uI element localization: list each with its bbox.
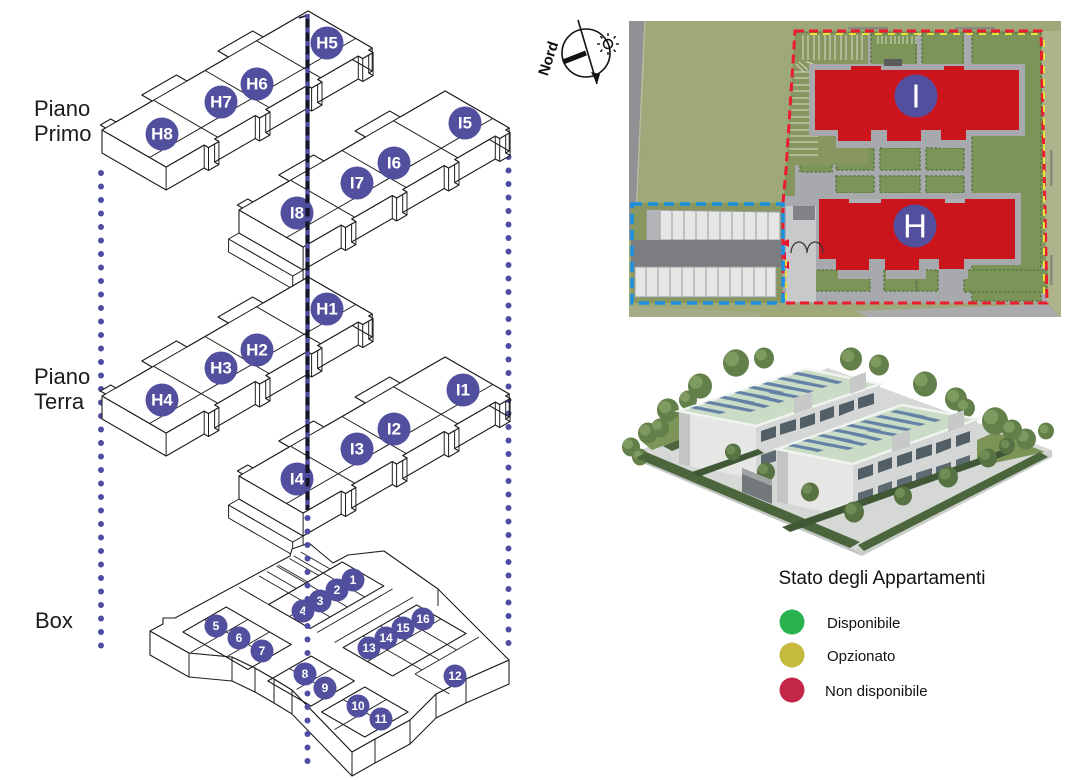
svg-text:Box: Box bbox=[35, 608, 73, 633]
svg-text:5: 5 bbox=[213, 619, 220, 633]
svg-text:H7: H7 bbox=[210, 93, 232, 112]
svg-text:Primo: Primo bbox=[34, 121, 91, 146]
svg-text:I6: I6 bbox=[387, 154, 401, 173]
svg-text:Piano: Piano bbox=[34, 96, 90, 121]
svg-text:9: 9 bbox=[322, 681, 329, 695]
svg-text:H8: H8 bbox=[151, 125, 173, 144]
svg-text:14: 14 bbox=[379, 631, 393, 645]
svg-text:H4: H4 bbox=[151, 391, 173, 410]
svg-text:H3: H3 bbox=[210, 359, 232, 378]
svg-text:Stato degli Appartamenti: Stato degli Appartamenti bbox=[778, 568, 985, 589]
svg-text:I5: I5 bbox=[458, 114, 472, 133]
svg-text:I2: I2 bbox=[387, 420, 401, 439]
svg-text:Disponibile: Disponibile bbox=[827, 615, 900, 632]
svg-text:I4: I4 bbox=[290, 470, 305, 489]
svg-text:12: 12 bbox=[448, 669, 462, 683]
svg-text:2: 2 bbox=[334, 583, 341, 597]
svg-text:H5: H5 bbox=[316, 34, 338, 53]
svg-text:10: 10 bbox=[351, 699, 365, 713]
svg-text:13: 13 bbox=[362, 641, 376, 655]
svg-text:I1: I1 bbox=[456, 381, 470, 400]
svg-text:3: 3 bbox=[317, 594, 324, 608]
svg-text:Piano: Piano bbox=[34, 364, 90, 389]
svg-text:Opzionato: Opzionato bbox=[827, 648, 895, 665]
svg-text:Nord: Nord bbox=[535, 39, 562, 78]
svg-text:H2: H2 bbox=[246, 341, 268, 360]
svg-text:Terra: Terra bbox=[34, 389, 85, 414]
svg-text:16: 16 bbox=[416, 612, 430, 626]
svg-text:I: I bbox=[911, 78, 920, 115]
svg-text:I8: I8 bbox=[290, 204, 304, 223]
svg-text:I3: I3 bbox=[350, 440, 364, 459]
svg-text:15: 15 bbox=[396, 621, 410, 635]
svg-text:I7: I7 bbox=[350, 174, 364, 193]
svg-text:Non disponibile: Non disponibile bbox=[825, 683, 928, 700]
svg-text:H: H bbox=[903, 208, 927, 245]
svg-text:7: 7 bbox=[259, 644, 266, 658]
svg-text:11: 11 bbox=[375, 712, 388, 726]
svg-text:H6: H6 bbox=[246, 75, 268, 94]
svg-text:H1: H1 bbox=[316, 300, 338, 319]
svg-text:6: 6 bbox=[236, 631, 243, 645]
svg-text:1: 1 bbox=[350, 573, 357, 587]
